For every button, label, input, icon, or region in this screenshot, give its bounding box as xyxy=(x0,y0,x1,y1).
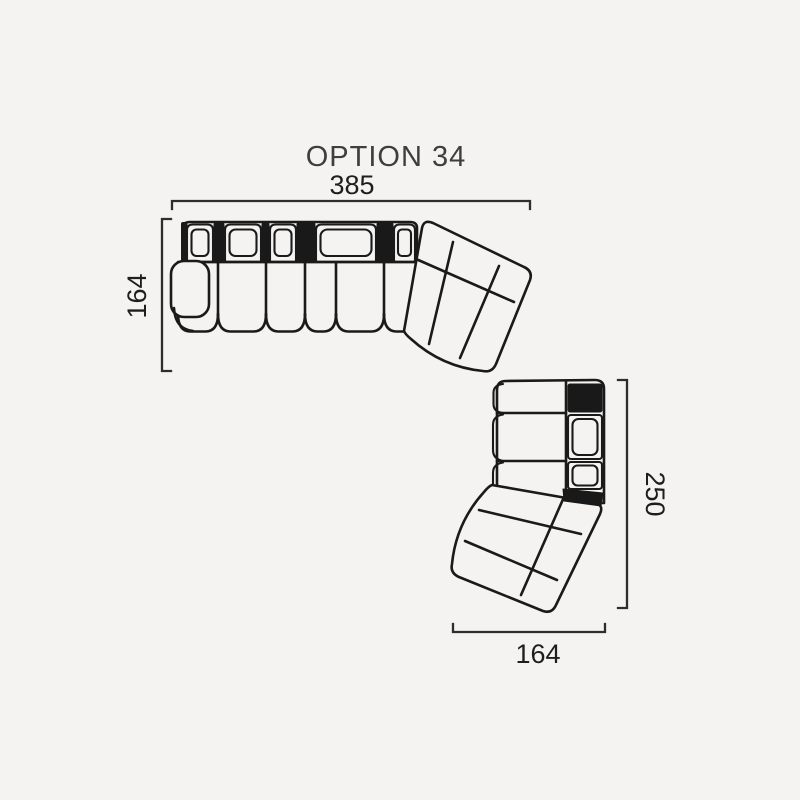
dimension-label-bottom: 164 xyxy=(515,639,560,669)
straight-sofa-right xyxy=(493,380,604,503)
armrest xyxy=(171,261,209,317)
background xyxy=(0,0,800,800)
sofa-plan-diagram: OPTION 34 385 164 250 164 xyxy=(0,0,800,800)
page-title: OPTION 34 xyxy=(306,141,467,173)
dimension-label-top: 385 xyxy=(329,170,374,200)
dimension-label-right: 250 xyxy=(640,471,670,516)
diagram-canvas: OPTION 34 385 164 250 164 xyxy=(0,0,800,800)
dimension-label-left: 164 xyxy=(122,273,152,318)
dark-connector-panel xyxy=(568,384,602,412)
